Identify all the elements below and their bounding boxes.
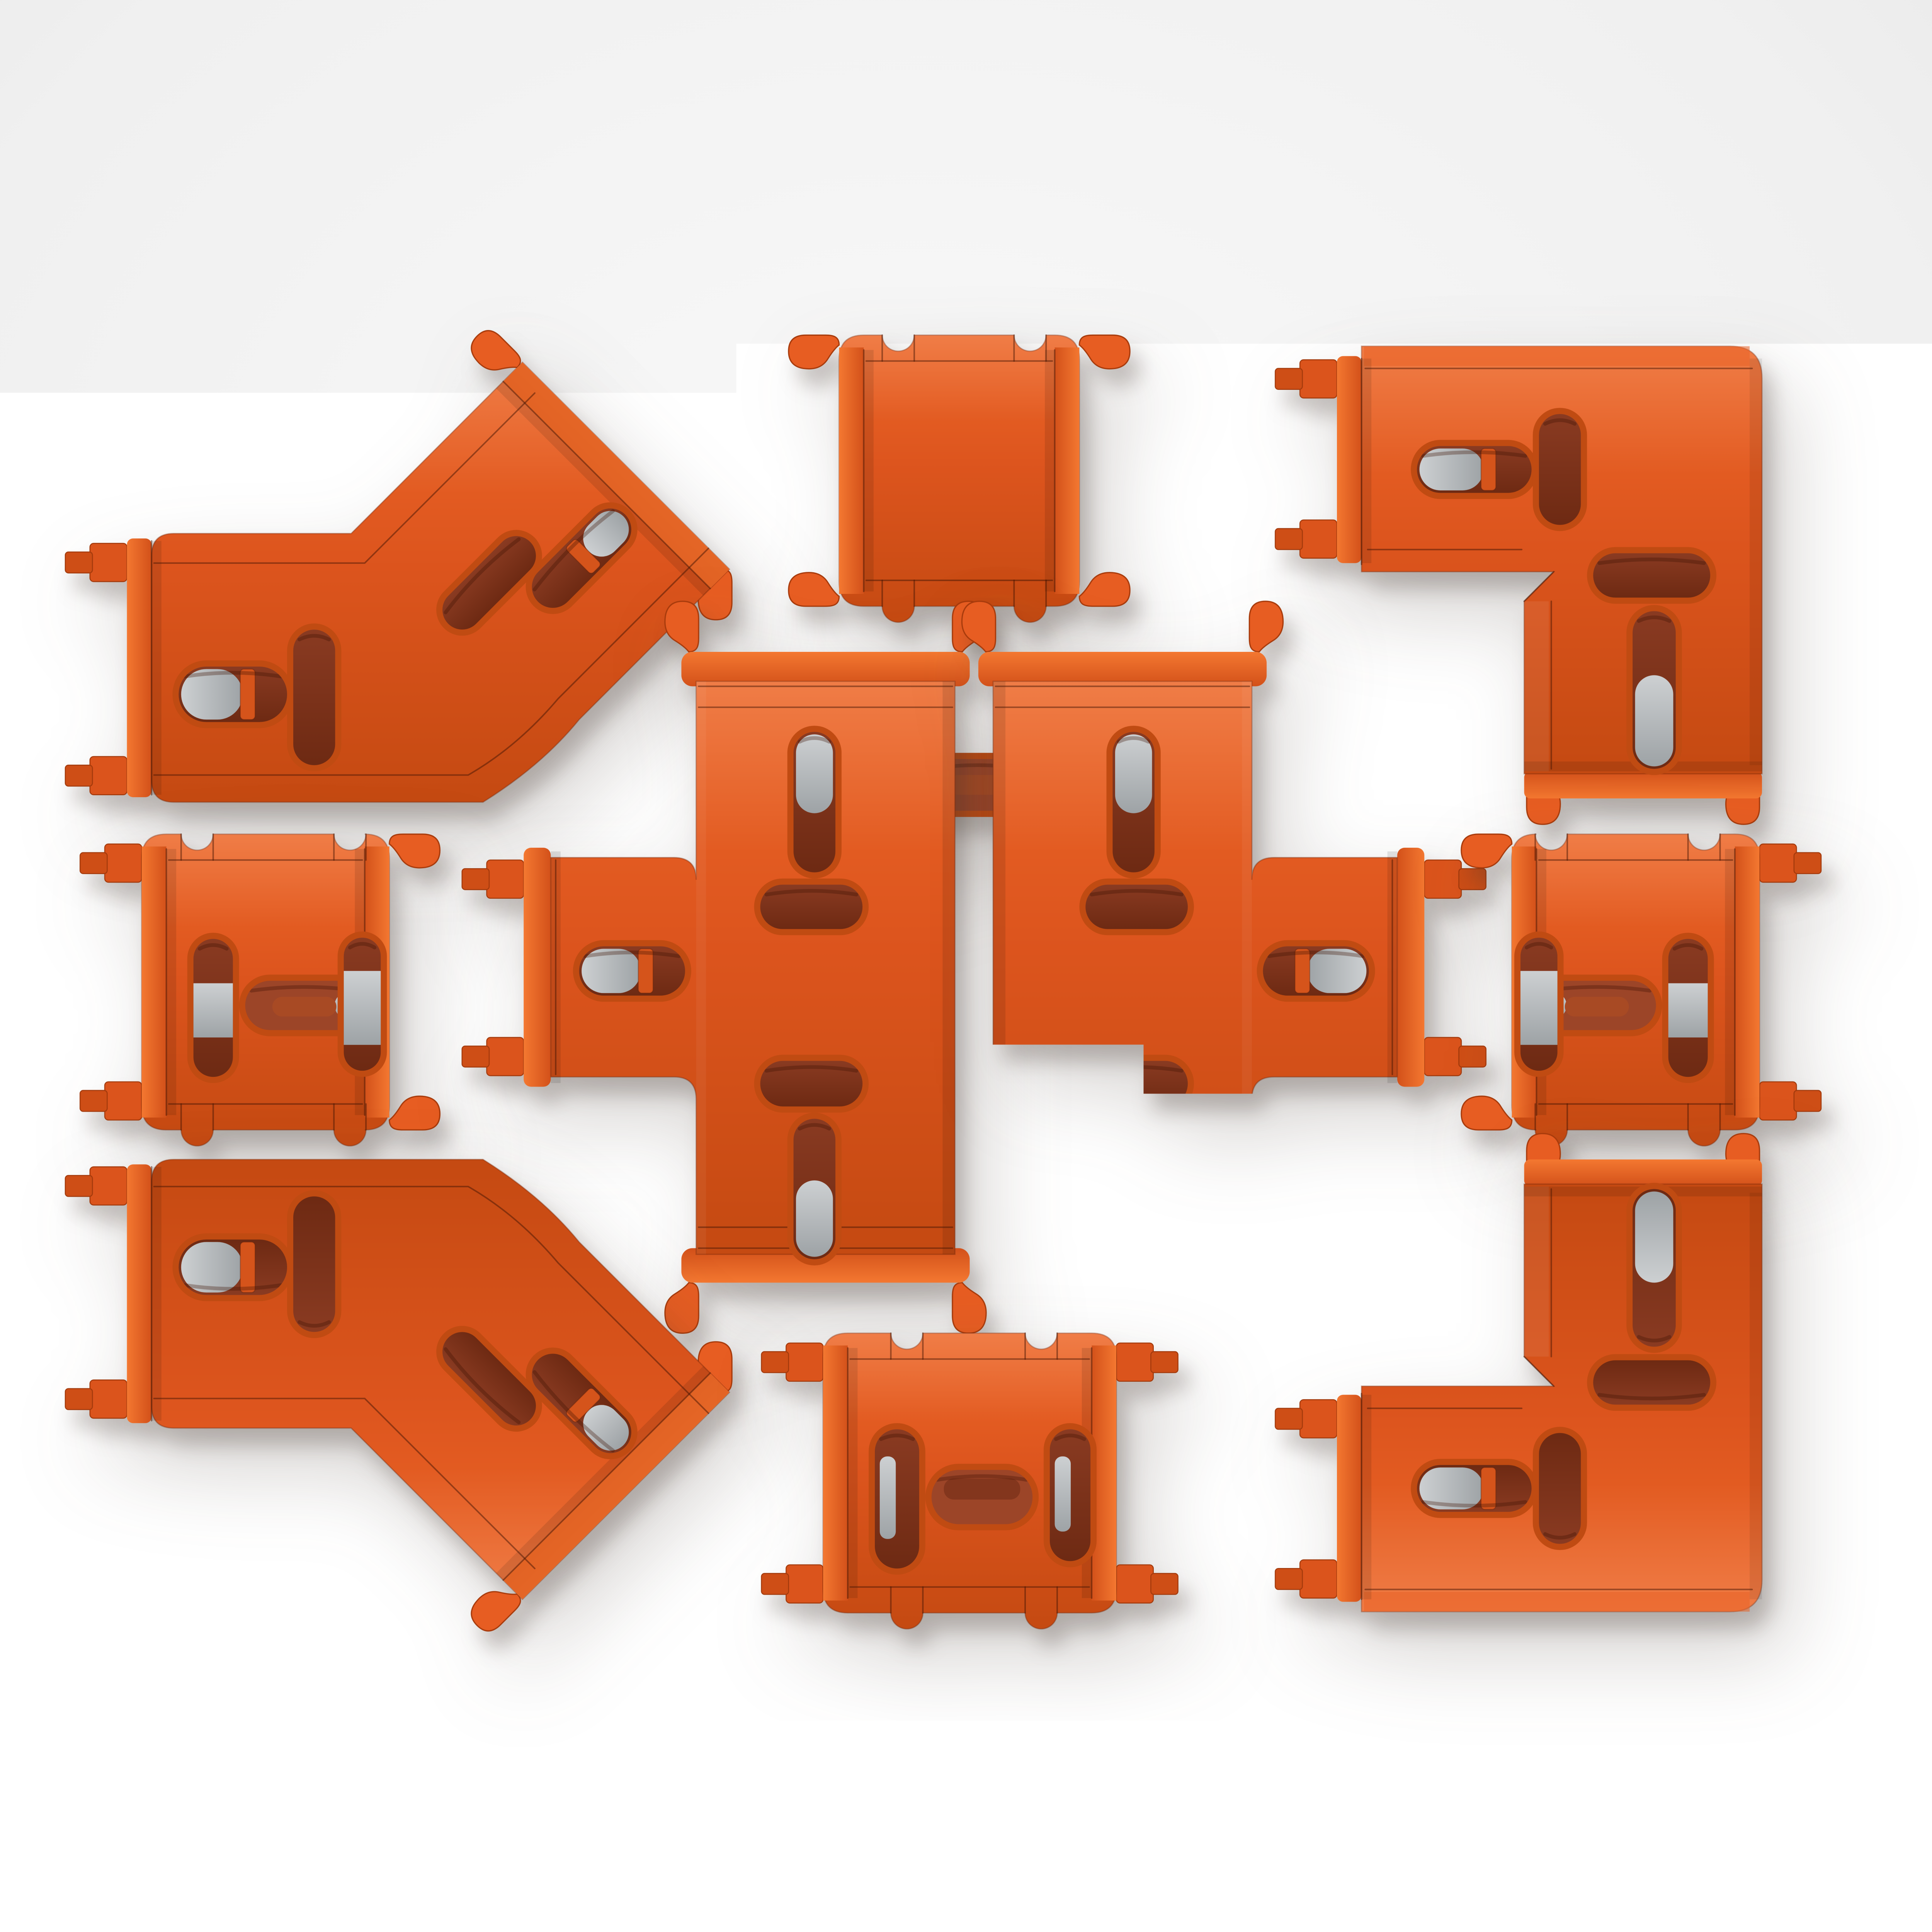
clip-tab	[1116, 1565, 1178, 1603]
clip-tab	[80, 844, 141, 882]
clip-tab	[762, 1565, 823, 1603]
mounting-slot	[1626, 1183, 1682, 1353]
mounting-slot	[338, 932, 387, 1077]
mounting-slot	[754, 1055, 869, 1113]
coupler-connector-middle-left	[80, 834, 440, 1146]
clip-tab	[1275, 520, 1337, 558]
clip-tab	[1275, 360, 1337, 398]
clip-hook-icon	[789, 335, 839, 369]
clip-tab	[1760, 844, 1821, 882]
tee-connector-center-right	[962, 601, 1486, 1333]
clip-hook-icon	[1249, 1283, 1283, 1333]
clip-hook-icon	[1079, 573, 1130, 606]
clip-tab	[1760, 1082, 1821, 1120]
clip-tab	[1275, 1560, 1337, 1598]
mounting-slot	[1662, 933, 1714, 1083]
clip-tab	[65, 543, 127, 582]
coupler-connector-middle-right	[1461, 834, 1821, 1146]
clip-hook-icon	[1461, 834, 1512, 868]
clip-tab	[462, 1037, 524, 1076]
mounting-slot	[787, 1112, 842, 1265]
mounting-slot	[754, 879, 869, 935]
clip-tab	[1424, 1037, 1486, 1076]
clip-tab	[65, 757, 127, 795]
clip-hook-icon	[389, 834, 440, 868]
elbow-90-connector-top-right	[1275, 346, 1762, 824]
render-canvas	[0, 0, 1932, 1932]
connector-parts-render	[0, 0, 1932, 1932]
mounting-slot	[1514, 932, 1564, 1077]
elbow-45-connector-top-left	[65, 325, 732, 802]
mounting-slot	[1411, 1459, 1537, 1518]
clip-hook-icon	[1079, 335, 1130, 369]
mounting-slot	[1533, 408, 1587, 531]
clip-tab	[462, 860, 524, 898]
mounting-slot	[573, 940, 691, 1002]
clip-hook-icon	[1249, 601, 1283, 652]
clip-hook-icon	[1461, 1096, 1512, 1130]
clip-tab	[1275, 1400, 1337, 1438]
mounting-slot	[1533, 1427, 1587, 1550]
mounting-slot	[287, 1190, 341, 1338]
mounting-slot	[287, 624, 341, 772]
mounting-slot	[787, 726, 842, 878]
mounting-slot	[869, 1423, 925, 1575]
mounting-slot	[1626, 605, 1682, 775]
mounting-slot	[172, 660, 293, 728]
elbow-45-connector-bottom-left	[65, 1160, 732, 1637]
mounting-slot	[1587, 1354, 1716, 1411]
clip-hook-icon	[389, 1096, 440, 1130]
mounting-slot	[1107, 1112, 1161, 1265]
clip-tab	[65, 1167, 127, 1205]
clip-tab	[65, 1380, 127, 1418]
clip-hook-icon	[789, 573, 839, 606]
mounting-slot	[1079, 1055, 1194, 1113]
mounting-slot	[1257, 940, 1375, 1002]
clip-tab	[1116, 1343, 1178, 1381]
clip-hook-icon	[665, 1283, 699, 1333]
mounting-slot	[925, 1464, 1039, 1530]
mounting-slot	[1044, 1423, 1097, 1567]
mounting-slot	[1107, 726, 1161, 878]
mounting-slot	[1411, 440, 1537, 499]
coupler-connector-bottom-center	[762, 1333, 1178, 1629]
clip-tab	[762, 1343, 823, 1381]
mounting-slot	[187, 933, 239, 1083]
mounting-slot	[1587, 547, 1716, 604]
elbow-90-connector-bottom-right	[1275, 1134, 1762, 1612]
mounting-slot	[1079, 879, 1194, 935]
clip-tab	[80, 1082, 141, 1120]
mounting-slot	[172, 1233, 293, 1301]
clip-hook-icon	[665, 601, 699, 652]
